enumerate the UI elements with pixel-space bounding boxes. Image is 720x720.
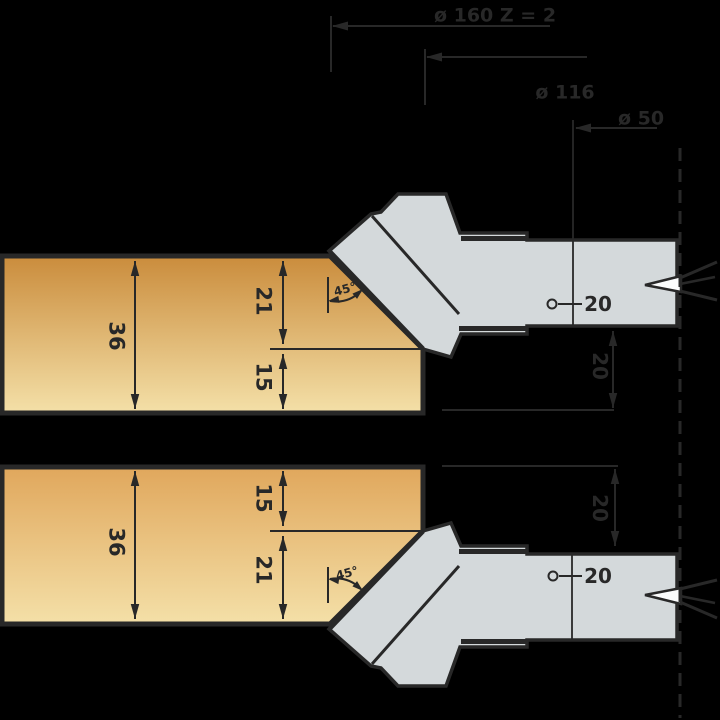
label-bore-top: 20 [584,292,612,316]
label-36-top: 36 [105,321,129,350]
cutterhead-top-slot-lower [459,326,527,331]
label-36-bottom: 36 [105,527,129,556]
dim-20-bottom-arrow-1 [611,469,620,484]
dim-20-bottom-arrow-2 [611,531,620,546]
knife-mark-top-ray-mid [680,277,715,284]
label-160: ø 160 Z = 2 [434,5,556,27]
label-15-top: 15 [252,362,276,391]
knife-mark-top-ray-lower [680,291,717,300]
cutterhead-bottom-slot-upper [459,549,527,554]
arrow-160 [332,22,348,31]
arrow-116 [426,53,442,62]
screenshot-root: 36211536152145°45°20202020ø 160 Z = 2ø 1… [0,0,720,720]
dim-20-top-arrow-2 [609,393,618,408]
label-21-bottom: 21 [252,555,276,584]
cutterhead-bottom-slot-lower [461,639,527,644]
label-116: ø 116 [535,82,594,104]
knife-mark-bottom-ray-mid [680,596,715,603]
dim-20-top-arrow-1 [609,331,618,346]
knife-mark-top-ray-upper [680,262,717,278]
knife-mark-bottom-ray-upper [680,602,717,618]
drawing-layers: 36211536152145°45°20202020ø 160 Z = 2ø 1… [2,5,717,718]
label-bore-bottom: 20 [584,564,612,588]
knife-mark-bottom-ray-lower [680,580,717,589]
label-20-bottom: 20 [588,494,612,522]
cutterhead-top-slot-upper [461,236,527,241]
label-21-top: 21 [252,286,276,315]
label-20-top: 20 [588,352,612,380]
label-50: ø 50 [618,108,664,130]
label-15-bottom: 15 [252,483,276,512]
arrow-50 [575,124,591,133]
technical-drawing: 36211536152145°45°20202020ø 160 Z = 2ø 1… [0,0,720,720]
